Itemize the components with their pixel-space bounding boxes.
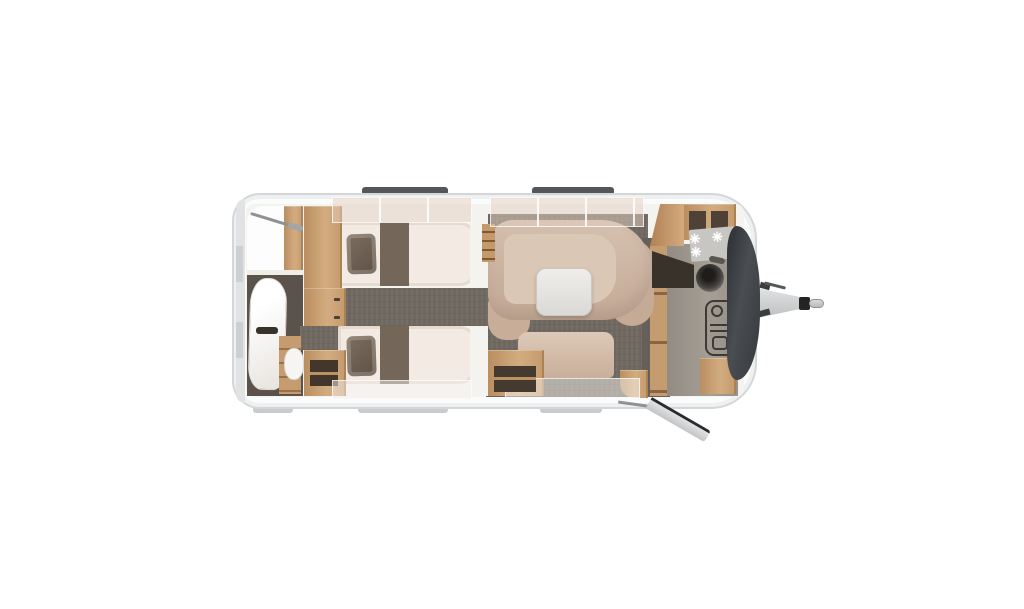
bed-runner-top	[380, 222, 409, 286]
caravan-floorplan: ✳ ✳ ✳	[0, 0, 1024, 609]
toilet	[284, 348, 304, 380]
window-overlay-bed-bottom	[332, 380, 472, 400]
rear-bumper-segment	[236, 246, 243, 282]
bed-runner-bottom	[380, 326, 409, 384]
pillow-bottom	[346, 336, 376, 377]
shelf-opening	[287, 213, 300, 229]
lounge-table	[536, 268, 592, 316]
washbasin-faucet	[256, 327, 278, 334]
wardrobe-handle	[334, 316, 340, 319]
cabinet-shelf	[310, 372, 338, 375]
storage-cube-shelf	[494, 377, 536, 380]
heater-dial-icon	[711, 305, 723, 317]
heater-box-detail	[712, 336, 728, 350]
overhead-locker-bed-top	[332, 197, 472, 223]
bunk-ladder	[482, 224, 495, 262]
overhead-locker-lounge	[490, 197, 644, 227]
pillow-top	[346, 234, 376, 275]
bathroom-partition-wall	[247, 270, 303, 275]
hitch-jockey-knob	[809, 299, 824, 308]
wardrobe-handle	[334, 298, 340, 301]
kitchen-sink	[696, 264, 724, 292]
wardrobe-middle	[304, 288, 346, 326]
rear-bumper-segment	[236, 322, 243, 358]
partition-wall-bottom	[470, 326, 488, 396]
rear-bumper-band	[236, 199, 245, 403]
shelf-opening	[287, 237, 300, 253]
